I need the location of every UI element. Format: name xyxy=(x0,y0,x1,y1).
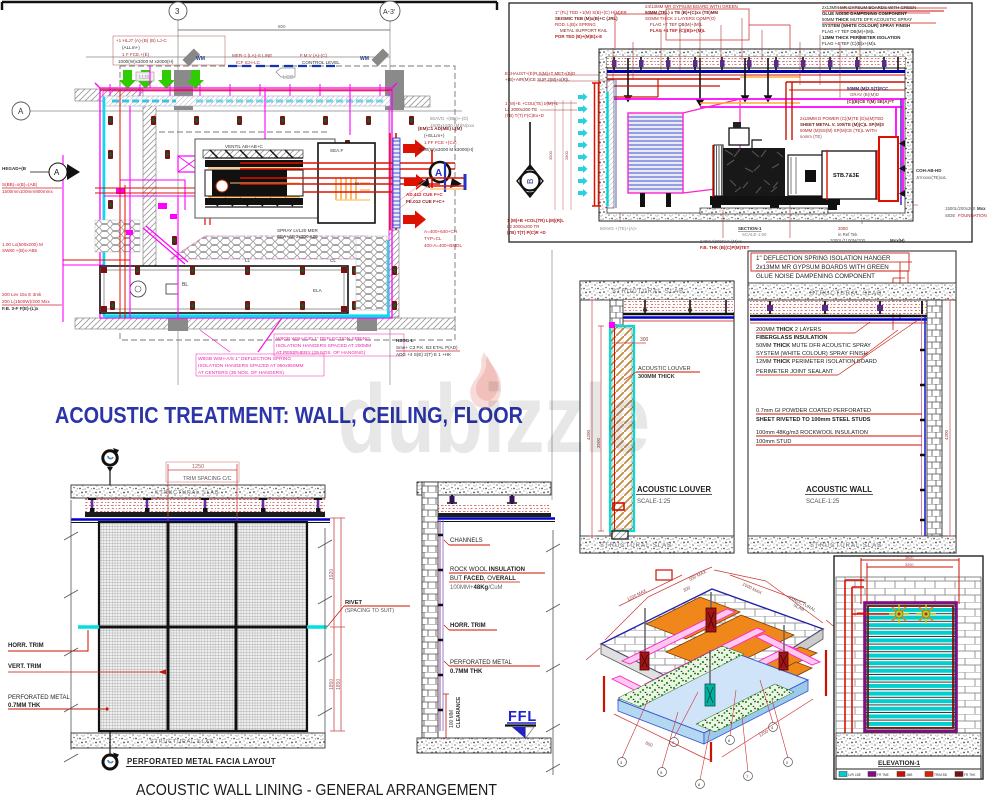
svg-text:AT CENTERS (35 NOS. OF HANGER: AT CENTERS (35 NOS. OF HANGERS) xyxy=(198,370,284,376)
svg-text:HEGAD+(B: HEGAD+(B xyxy=(2,166,27,171)
svg-text:M: M xyxy=(355,181,359,186)
svg-text:ROCK WOOL INSULATION: ROCK WOOL INSULATION xyxy=(450,567,525,573)
svg-text:F.B. 3-F F(E)-(L)x: F.B. 3-F F(E)-(L)x xyxy=(2,306,39,311)
svg-text:FIBERGLASS INSULATION: FIBERGLASS INSULATION xyxy=(756,335,827,341)
svg-text:SHEET RIVETED TO 100mm STEEL S: SHEET RIVETED TO 100mm STEEL STUDS xyxy=(756,417,871,423)
svg-text:MER-1 (LA)-S LINE: MER-1 (LA)-S LINE xyxy=(232,53,272,58)
svg-text:2000L/1100M/200: 2000L/1100M/200 xyxy=(830,238,866,243)
svg-text:BUT FACED, OVERALL: BUT FACED, OVERALL xyxy=(450,576,516,582)
svg-text:SPRAY LVL20 MER: SPRAY LVL20 MER xyxy=(277,228,319,233)
svg-text:1850: 1850 xyxy=(336,679,342,690)
svg-text:1850: 1850 xyxy=(329,679,335,690)
svg-text:PERFORATED METAL: PERFORATED METAL xyxy=(8,695,70,701)
svg-text:A: A xyxy=(18,107,24,116)
svg-text:1250: 1250 xyxy=(192,464,204,470)
svg-text:SYSTEM (WHITE COLOUR) SPRAY FI: SYSTEM (WHITE COLOUR) SPRAY FINISH xyxy=(756,351,868,357)
svg-text:SEISMIC TEB (M)x(B)+C (JRL): SEISMIC TEB (M)x(B)+C (JRL) xyxy=(555,16,618,21)
svg-text:LVR LBE: LVR LBE xyxy=(848,773,861,777)
svg-text:SHEET METAL V. 100/TE (M)(C)L: SHEET METAL V. 100/TE (M)(C)L SP(M)S xyxy=(800,122,884,127)
svg-text:0.7mm GI POWDER COATED PERFORA: 0.7mm GI POWDER COATED PERFORATED xyxy=(756,408,871,414)
svg-text:200 Lev 15x E 3mk: 200 Lev 15x E 3mk xyxy=(2,292,42,297)
svg-text:PERFORATED METAL: PERFORATED METAL xyxy=(450,660,512,666)
svg-text:1 (M)+E +COU(TE) L(M)+L: 1 (M)+E +COU(TE) L(M)+L xyxy=(505,101,559,106)
svg-text:A: A xyxy=(54,168,60,177)
svg-text:50AVG +(BE)+-(D): 50AVG +(BE)+-(D) xyxy=(430,116,469,121)
svg-text:STRUCTURAL SLAB: STRUCTURAL SLAB xyxy=(810,291,882,297)
svg-text:VERT. TRIM: VERT. TRIM xyxy=(8,664,41,670)
svg-text:50MM (M)3 S(T)ECC: 50MM (M)3 S(T)ECC xyxy=(847,86,889,91)
svg-text:FLAG +7 TEF DB(M)+(M)L: FLAG +7 TEF DB(M)+(M)L xyxy=(822,29,875,34)
svg-text:100MM+48Kg/CuM: 100MM+48Kg/CuM xyxy=(450,585,503,591)
svg-text:1500L/200x200: 1500L/200x200 xyxy=(945,206,976,211)
svg-text:JMB: JMB xyxy=(906,773,912,777)
svg-text:ELEVATION-1: ELEVATION-1 xyxy=(878,760,920,767)
svg-text:FLAG +4 TEF (C)(B)x+(M)L: FLAG +4 TEF (C)(B)x+(M)L xyxy=(822,41,877,46)
svg-text:S(BB)=x(B)=(AB): S(BB)=x(B)=(AB) xyxy=(2,182,38,187)
svg-text:SEA.F: SEA.F xyxy=(330,148,343,153)
svg-text:ROD. L(B)x SPRING: ROD. L(B)x SPRING xyxy=(555,22,596,27)
svg-text:1 (M)+B +COL(TR) L(M)(R)L: 1 (M)+B +COL(TR) L(M)(R)L xyxy=(507,218,564,223)
svg-text:W8GB WSH-A/S 1" DEFLECTION SPR: W8GB WSH-A/S 1" DEFLECTION SPRING xyxy=(198,356,291,362)
svg-text:WM: WM xyxy=(196,56,205,62)
svg-text:SCALE-1:25: SCALE-1:25 xyxy=(637,499,671,505)
svg-text:1" (FL) TED +1(M) S(B)+(C) H(M: 1" (FL) TED +1(M) S(B)+(C) H(M)ER xyxy=(555,10,627,15)
svg-text:1000(W)x3000 M x2000(H): 1000(W)x3000 M x2000(H) xyxy=(118,59,174,64)
svg-text:1 F FCE.+(E): 1 F FCE.+(E) xyxy=(122,52,150,57)
svg-text:GLUE NOISE DAMPENING COMPONENT: GLUE NOISE DAMPENING COMPONENT xyxy=(822,11,907,16)
svg-text:ELA: ELA xyxy=(313,288,323,293)
svg-text:somm (TE): somm (TE) xyxy=(800,134,822,139)
svg-text:50AVG +(TE)+(A)+: 50AVG +(TE)+(A)+ xyxy=(600,226,638,231)
svg-text:STRUCTURAL SLAB: STRUCTURAL SLAB xyxy=(612,289,684,295)
svg-text:(C)(B)CE T(M) SE(A)=T: (C)(B)CE T(M) SE(A)=T xyxy=(847,99,895,104)
svg-text:800: 800 xyxy=(278,24,286,29)
svg-text:100mm 48Kg/m3 ROCKWOOL INSULAT: 100mm 48Kg/m3 ROCKWOOL INSULATION xyxy=(756,430,868,436)
svg-text:WM: WM xyxy=(360,56,369,62)
svg-text:FLAG +4 TEF (C)(B)x+(M)L: FLAG +4 TEF (C)(B)x+(M)L xyxy=(650,28,706,33)
svg-text:A-3': A-3' xyxy=(383,9,395,16)
svg-text:ADG +4 S(E) 2(T) E 1 +HK: ADG +4 S(E) 2(T) E 1 +HK xyxy=(396,352,452,357)
svg-text:A=400+640+CH: A=400+640+CH xyxy=(424,229,457,234)
svg-text:(ALLm+): (ALLm+) xyxy=(122,45,140,50)
svg-text:SCALE-1:50: SCALE-1:50 xyxy=(742,232,767,237)
svg-text:dubizzle: dubizzle xyxy=(338,364,650,473)
svg-text:HORR. TRIM: HORR. TRIM xyxy=(450,623,486,629)
svg-text:FR TME: FR TME xyxy=(877,773,889,777)
svg-text:50MM (M)SS(M) SP(M)CE (TE)L WI: 50MM (M)SS(M) SP(M)CE (TE)L WITH xyxy=(800,128,877,133)
svg-text:(TB) T(T) P(C)R +D: (TB) T(T) P(C)R +D xyxy=(507,230,546,235)
svg-text:200 L(1500W)/200 Mxx: 200 L(1500W)/200 Mxx xyxy=(2,299,50,304)
svg-text:2500(W)x3000 M x3000(H): 2500(W)x3000 M x3000(H) xyxy=(418,147,474,152)
svg-text:TYP=CL: TYP=CL xyxy=(424,236,442,241)
svg-text:Mxx: Mxx xyxy=(977,206,986,211)
svg-text:W8GB WSH-E30 1" DEFLECTION SPR: W8GB WSH-E30 1" DEFLECTION SPRING xyxy=(276,336,370,342)
svg-text:F.M.V (A)-(C): F.M.V (A)-(C) xyxy=(300,53,328,58)
svg-text:SIDE: SIDE xyxy=(945,213,955,218)
svg-text:(TB) T(T) F(C)Ex+D: (TB) T(T) F(C)Ex+D xyxy=(505,113,544,118)
svg-text:TRIM SPACING C/C: TRIM SPACING C/C xyxy=(183,476,232,482)
svg-text:GLUE NOISE DAMPENING COMPON: GLUE NOISE DAMPENING COMPONENT xyxy=(756,273,875,280)
svg-text:ISOLATION HANGERS SPACED AT 95: ISOLATION HANGERS SPACED AT 950x950MM xyxy=(198,363,303,369)
svg-text:0.7MM THK: 0.7MM THK xyxy=(450,669,483,675)
svg-text:LL: LL xyxy=(245,258,251,263)
svg-text:SECTION-1: SECTION-1 xyxy=(738,226,762,231)
svg-text:2x13MM MR GYPSUM BOARDS WITH G: 2x13MM MR GYPSUM BOARDS WITH GREEN xyxy=(822,5,916,10)
svg-text:+1 HLJ7 (A)-(B) (B) LJ-C: +1 HLJ7 (A)-(B) (B) LJ-C xyxy=(116,38,167,43)
svg-text:B: B xyxy=(526,179,535,184)
svg-text:CL: CL xyxy=(330,258,336,263)
svg-text:100mm STUD: 100mm STUD xyxy=(756,439,791,445)
svg-text:1500mm100mm900mmx: 1500mm100mm900mmx xyxy=(2,189,54,194)
svg-text:CONTROL LEVEL: CONTROL LEVEL xyxy=(302,60,340,65)
svg-text:50MM (TEL) x TE (B)+(C)xx (TE: 50MM (TEL) x TE (B)+(C)xx (TE)MM xyxy=(645,10,718,15)
svg-text:ICF ICH-LC: ICF ICH-LC xyxy=(236,60,261,65)
svg-text:Sme+ C3 P.K. B3 ETAL P(AD): Sme+ C3 P.K. B3 ETAL P(AD) xyxy=(396,345,458,350)
svg-text:FLAG +7 TEF DB(M)+(M)L: FLAG +7 TEF DB(M)+(M)L xyxy=(650,22,703,27)
svg-text:200MM THICK 2 LAYERS: 200MM THICK 2 LAYERS xyxy=(756,327,821,333)
svg-text:(+ELLm+): (+ELLm+) xyxy=(424,133,445,138)
svg-text:(SPACING TO SUIT): (SPACING TO SUIT) xyxy=(345,608,394,614)
svg-text:CHANNELS: CHANNELS xyxy=(450,538,483,544)
svg-text:F.B. THK (B)(C)P(M)TET: F.B. THK (B)(C)P(M)TET xyxy=(700,245,750,250)
svg-text:50MM THICK MUTE DFR ACOUSTIC S: 50MM THICK MUTE DFR ACOUSTIC SPRAY xyxy=(822,17,912,22)
svg-text:PERIMETER JOINT SEALANT: PERIMETER JOINT SEALANT xyxy=(756,369,834,375)
svg-text:ACOUSTIC WALL LINING - GENERAL: ACOUSTIC WALL LINING - GENERAL ARRANGEME… xyxy=(136,782,497,799)
svg-text:12MM THICK PERIMETER ISOLATION: 12MM THICK PERIMETER ISOLATION BOARD xyxy=(756,359,877,365)
svg-text:2800: 2800 xyxy=(564,150,569,160)
svg-text:RIVET: RIVET xyxy=(345,600,363,606)
svg-text:2x19MM D POWER (C)(M)TE (D)x(M: 2x19MM D POWER (C)(M)TE (D)x(M)TED xyxy=(800,116,883,121)
svg-text:3: 3 xyxy=(175,7,180,16)
svg-text:COH-AB-HD: COH-AB-HD xyxy=(916,168,941,173)
svg-text:VENTIL AB+AB+C: VENTIL AB+AB+C xyxy=(225,144,264,149)
svg-text:SCALE-1:25: SCALE-1:25 xyxy=(806,499,840,505)
svg-text:ACOUSTIC LOUVER: ACOUSTIC LOUVER xyxy=(637,484,711,494)
svg-text:PERFORATED METAL FACIA LAYOUT: PERFORATED METAL FACIA LAYOUT xyxy=(127,757,276,766)
svg-text:1920: 1920 xyxy=(329,569,335,580)
svg-text:100 MM: 100 MM xyxy=(449,710,455,728)
svg-text:SYSTEM (WHITE COLOUR) SPRAY FI: SYSTEM (WHITE COLOUR) SPRAY FINISH xyxy=(822,23,910,28)
svg-text:L2 2000x200 TE: L2 2000x200 TE xyxy=(505,107,537,112)
svg-text:SEA+AF 2x200 A20: SEA+AF 2x200 A20 xyxy=(277,234,318,239)
svg-text:12MM THICK PERIMETER ISOLATION: 12MM THICK PERIMETER ISOLATION xyxy=(822,35,900,40)
svg-text:ISOLATION HANGERS SPACED AT 20: ISOLATION HANGERS SPACED AT 200MM xyxy=(276,343,371,349)
svg-text:STRUCTURAL SLAB: STRUCTURAL SLAB xyxy=(810,543,882,549)
svg-text:300: 300 xyxy=(640,337,649,343)
svg-text:LCB: LCB xyxy=(283,75,294,81)
svg-text:AT PERIPHERY (29 NOS. OF HANG: AT PERIPHERY (29 NOS. OF HANGING) xyxy=(276,350,366,356)
svg-text:24/13MM MR GYPSUM BOARD WITH G: 24/13MM MR GYPSUM BOARD WITH GREEN xyxy=(645,4,738,9)
svg-text:3200: 3200 xyxy=(905,563,913,567)
svg-text:CLEARANCE: CLEARANCE xyxy=(456,696,462,728)
svg-text:1.00 Lx(500x200) M: 1.00 Lx(500x200) M xyxy=(2,242,43,247)
svg-text:STRUCTURAL SLAB: STRUCTURAL SLAB xyxy=(155,490,219,496)
svg-text:BL: BL xyxy=(182,282,188,288)
svg-text:3500: 3500 xyxy=(548,150,553,160)
svg-text:FR THK: FR THK xyxy=(964,773,976,777)
svg-text:LU3: LU3 xyxy=(139,75,149,81)
svg-text:HBSG-L: HBSG-L xyxy=(396,338,414,343)
svg-text:1" DEFLECTION SPRING ISOLAT: 1" DEFLECTION SPRING ISOLATION HANGER xyxy=(756,255,891,262)
svg-text:TRIM BD: TRIM BD xyxy=(934,773,948,777)
svg-text:2000: 2000 xyxy=(838,226,848,231)
svg-text:400-A=400+BMDL: 400-A=400+BMDL xyxy=(424,243,462,248)
svg-text:EXHAUST+(E)R S(M)+T MET+(B)D: EXHAUST+(E)R S(M)+T MET+(B)D xyxy=(505,71,575,76)
svg-text:GRAV (B)(M)D: GRAV (B)(M)D xyxy=(850,92,879,97)
svg-text:2x13MM MR GYPSUM BOARDS WI: 2x13MM MR GYPSUM BOARDS WITH GREEN xyxy=(756,264,889,271)
svg-text:Mxx(H): Mxx(H) xyxy=(890,238,905,243)
svg-text:POR TED (B)+(M)E)x-E: POR TED (B)+(M)E)x-E xyxy=(555,34,602,39)
svg-text:240KV/300KVA (M)xx: 240KV/300KVA (M)xx xyxy=(700,239,743,244)
svg-text:in Ref Tek: in Ref Tek xyxy=(838,232,858,237)
svg-text:50MM THICK MUTE DFR ACOUSTIC S: 50MM THICK MUTE DFR ACOUSTIC SPRAY xyxy=(756,343,871,349)
svg-text:STRUCTURAL SLAB: STRUCTURAL SLAB xyxy=(600,543,672,549)
svg-text:STB.7&3E: STB.7&3E xyxy=(833,173,860,179)
svg-text:4200: 4200 xyxy=(944,429,949,440)
svg-text:FOUNDATION: FOUNDATION xyxy=(958,213,987,218)
svg-text:SOMM THICK 2 LAYERS COMP(O): SOMM THICK 2 LAYERS COMP(O) xyxy=(645,16,716,21)
svg-text:0.7MM THK: 0.7MM THK xyxy=(8,703,41,709)
svg-text:FE.012 CUE F+C+: FE.012 CUE F+C+ xyxy=(406,199,445,204)
svg-text:METAL SUPPORT RAIL: METAL SUPPORT RAIL xyxy=(560,28,608,33)
svg-text:HORR. TRIM: HORR. TRIM xyxy=(8,643,44,649)
svg-text:AD.412 CUE F+C: AD.412 CUE F+C xyxy=(406,192,443,197)
svg-text:Jrrrxxxx(TE)xxL: Jrrrxxxx(TE)xxL xyxy=(916,175,947,180)
svg-text:3600: 3600 xyxy=(905,556,913,560)
svg-text:+(B)+AIR(M)CE SUP 2(M)+x(R)L: +(B)+AIR(M)CE SUP 2(M)+x(R)L xyxy=(505,77,570,82)
svg-text:SW80 +(B)x-AB5: SW80 +(B)x-AB5 xyxy=(2,248,38,253)
svg-text:ACOUSTIC WALL: ACOUSTIC WALL xyxy=(806,484,872,494)
svg-text:L2 2000x200 TR: L2 2000x200 TR xyxy=(507,224,539,229)
svg-text:1 FF FCE +(Cx): 1 FF FCE +(Cx) xyxy=(424,140,457,145)
svg-text:STRUCTURAL SLAB: STRUCTURAL SLAB xyxy=(150,739,214,745)
svg-text:(EM)=1 AD(ME) L(M): (EM)=1 AD(ME) L(M) xyxy=(418,126,462,131)
